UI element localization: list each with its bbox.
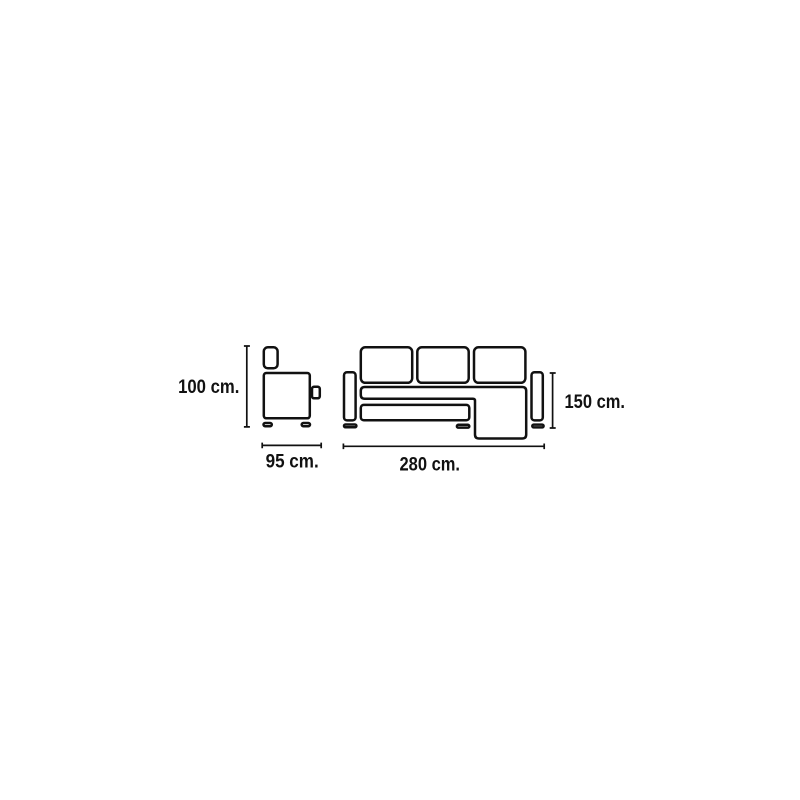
svg-text:95 cm.: 95 cm. xyxy=(266,451,319,472)
svg-text:150 cm.: 150 cm. xyxy=(565,392,626,413)
svg-text:100 cm.: 100 cm. xyxy=(178,377,239,398)
svg-text:280 cm.: 280 cm. xyxy=(400,455,461,476)
